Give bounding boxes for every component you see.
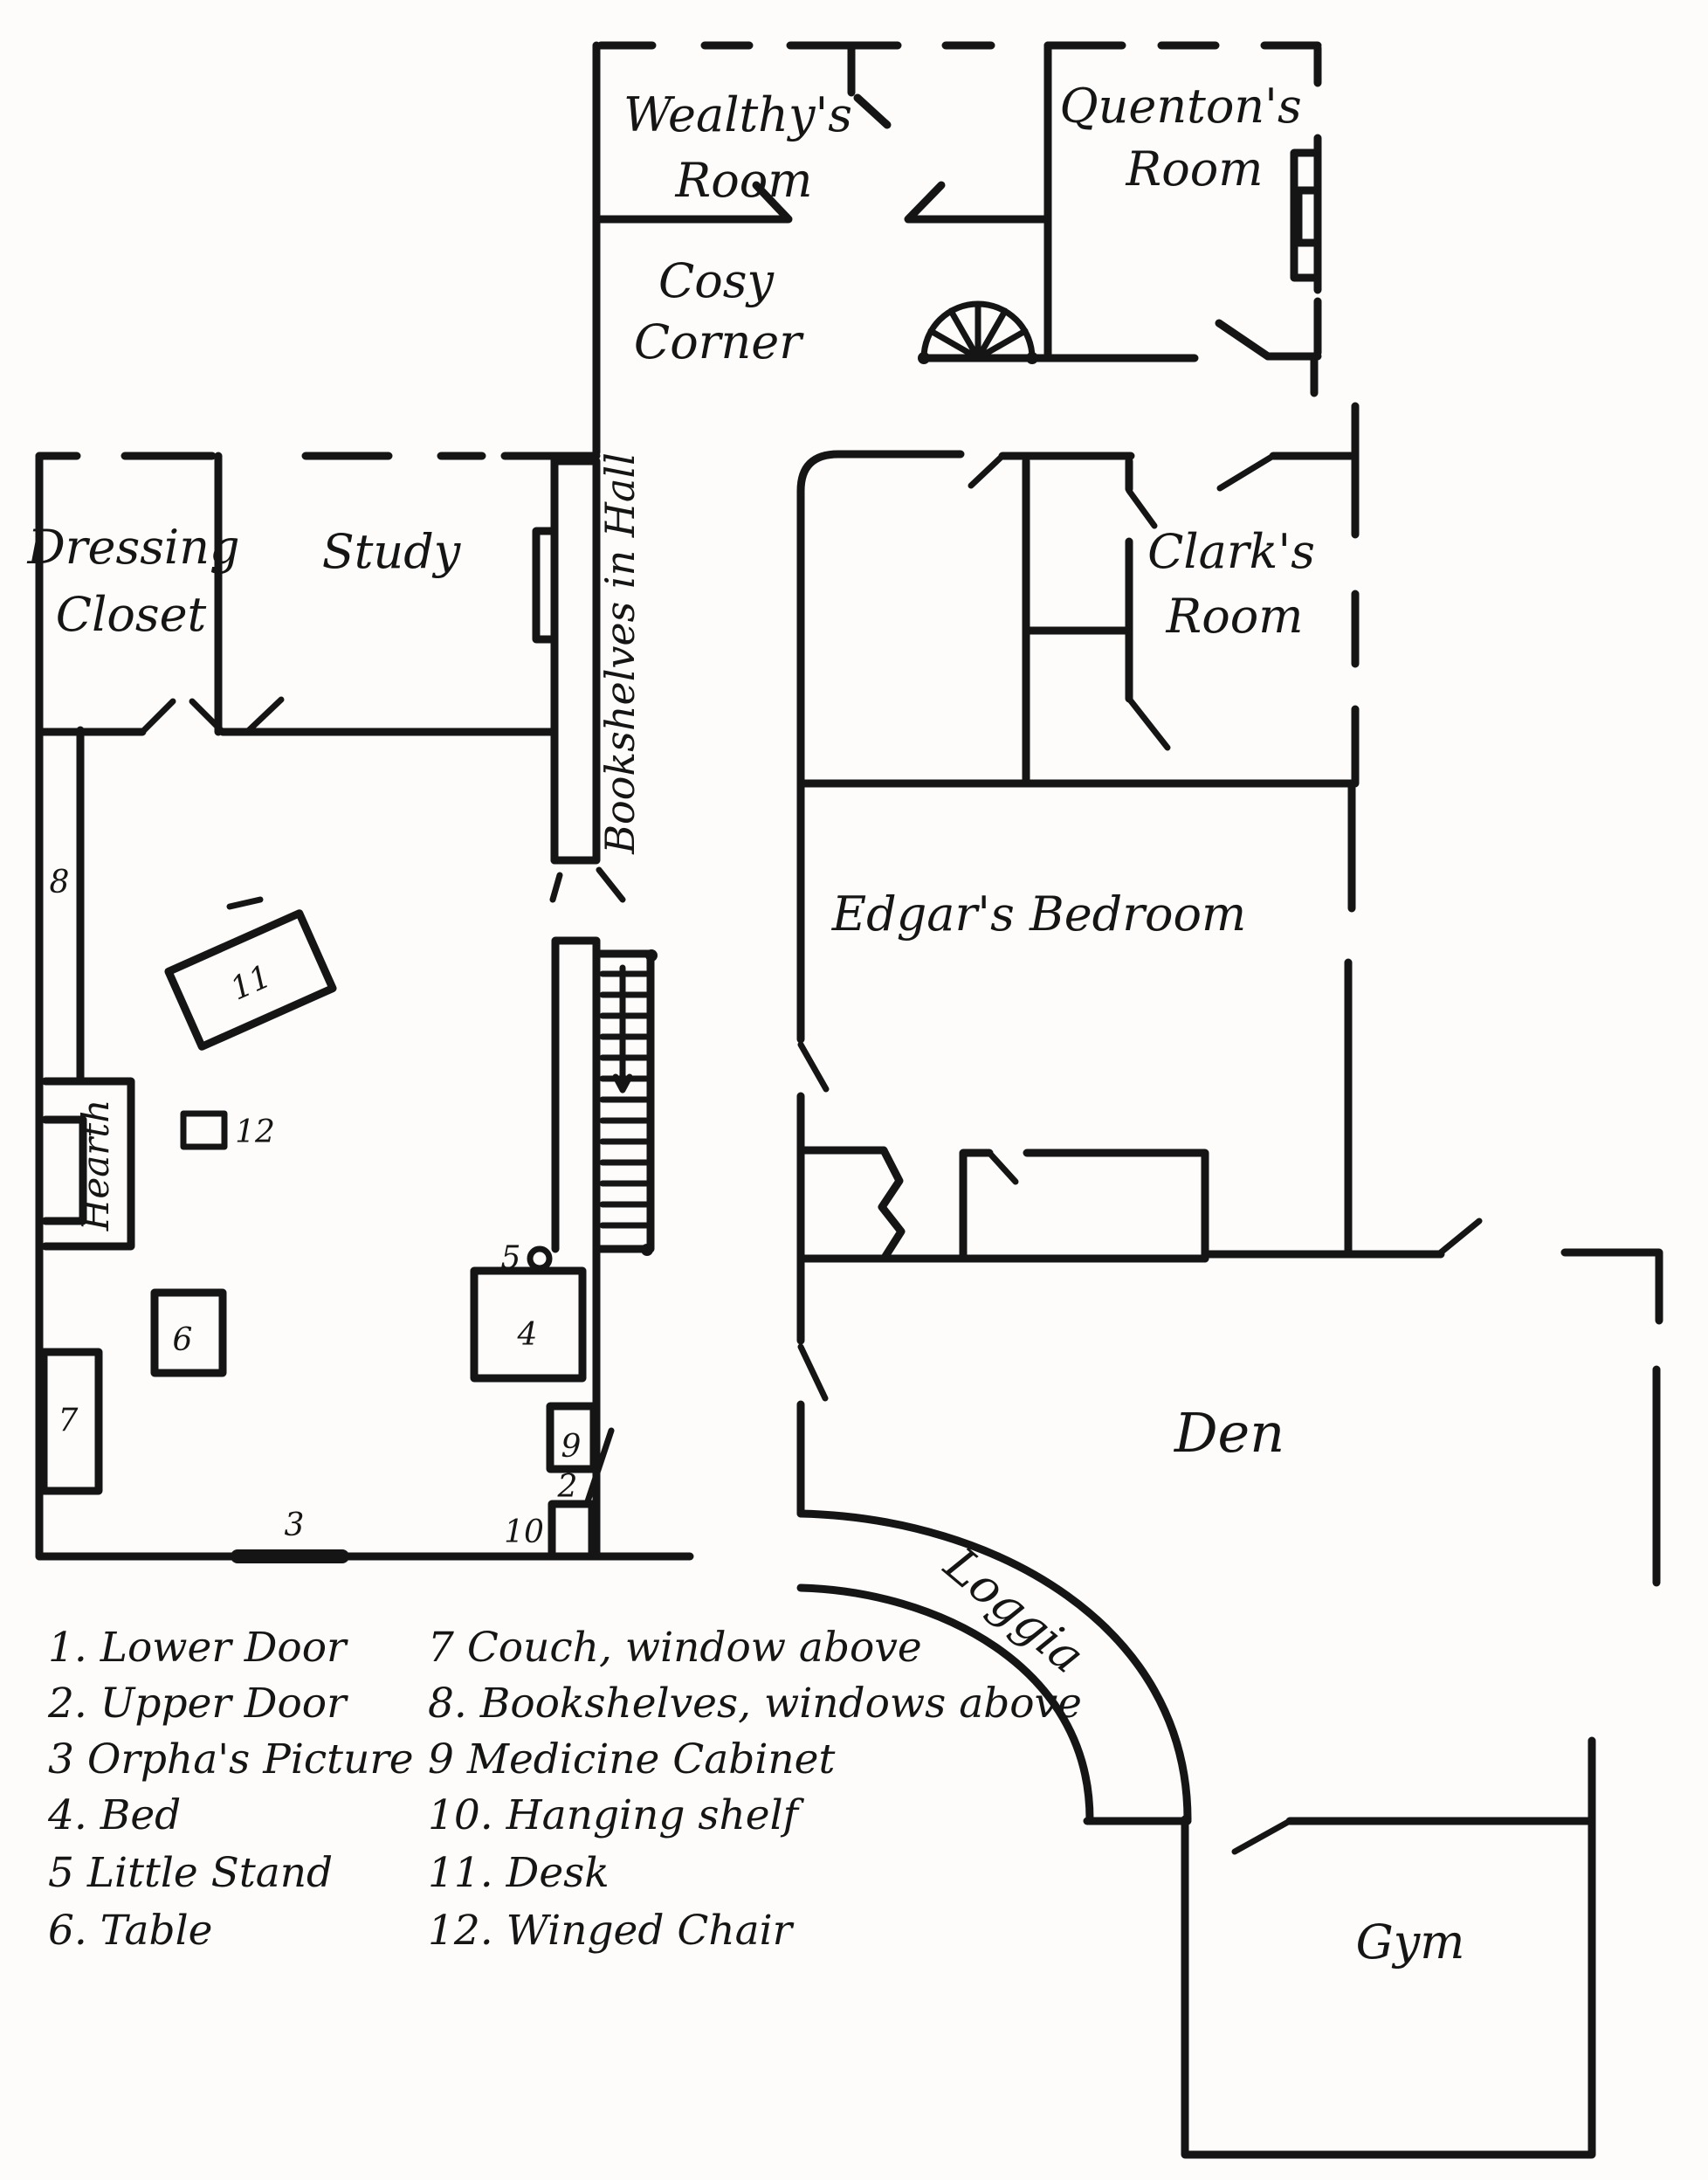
label-edgars-bedroom: Edgar's Bedroom	[831, 886, 1247, 942]
legend-item: 6. Table	[48, 1907, 212, 1955]
furniture-hall-lower	[474, 1249, 611, 1556]
floor-plan-page: Wealthy's Room Quenton's Room Cosy Corne…	[0, 0, 1708, 2180]
legend-item: 8. Bookshelves, windows above	[428, 1680, 1082, 1728]
legend-item: 7 Couch, window above	[428, 1624, 922, 1672]
label-clarks-room: Clark's	[1147, 524, 1315, 579]
marker-desk-11: 11	[225, 958, 277, 1007]
label-bookshelves-in-hall: Bookshelves in Hall	[596, 452, 644, 855]
label-study: Study	[322, 524, 462, 579]
stray-stroke	[230, 900, 260, 907]
label-dressing-closet: Closet	[56, 587, 207, 642]
legend-item: 9 Medicine Cabinet	[428, 1735, 835, 1783]
legend-item: 5 Little Stand	[48, 1849, 333, 1897]
straight-staircase	[596, 949, 658, 1256]
label-clarks-room: Room	[1166, 589, 1304, 644]
marker-table-6: 6	[173, 1322, 193, 1358]
stair-post-dot	[918, 352, 930, 364]
lower-door-swing	[553, 870, 623, 900]
stair-newel-dot	[641, 1244, 653, 1256]
stair-newel-dot	[645, 949, 658, 962]
marker-picture-3: 3	[285, 1507, 305, 1543]
hanging-shelf-10	[552, 1504, 592, 1556]
marker-bookshelves-8: 8	[50, 865, 70, 900]
marker-shelf-10: 10	[504, 1514, 544, 1550]
floor-plan-drawing: Wealthy's Room Quenton's Room Cosy Corne…	[0, 0, 1708, 2180]
marker-bed-4: 4	[517, 1317, 538, 1353]
legend-item: 11. Desk	[428, 1849, 610, 1897]
legend-item: 12. Winged Chair	[428, 1907, 795, 1955]
legend-item: 3 Orpha's Picture	[48, 1735, 414, 1783]
winged-chair-12	[183, 1114, 224, 1147]
label-den: Den	[1174, 1401, 1284, 1465]
label-quentons-room: Room	[1126, 141, 1264, 197]
label-dressing-closet: Dressing	[26, 520, 239, 575]
label-cosy-corner: Corner	[634, 314, 804, 369]
legend: 1. Lower Door 2. Upper Door 3 Orpha's Pi…	[47, 1624, 1082, 1955]
marker-stand-5: 5	[501, 1240, 521, 1276]
label-wealthys-room: Room	[675, 153, 813, 208]
legend-item: 10. Hanging shelf	[428, 1791, 805, 1839]
stair-down-arrow	[616, 968, 630, 1090]
legend-item: 1. Lower Door	[48, 1624, 348, 1672]
legend-item: 2. Upper Door	[47, 1680, 348, 1728]
label-wealthys-room: Wealthy's	[623, 87, 852, 142]
hall-bookshelf-case	[554, 461, 596, 860]
marker-chair-12: 12	[235, 1114, 275, 1150]
label-hearth: Hearth	[74, 1100, 117, 1232]
label-gym: Gym	[1356, 1914, 1465, 1970]
marker-cabinet-9: 9	[561, 1429, 582, 1465]
label-cosy-corner: Cosy	[658, 253, 775, 308]
little-stand-5	[530, 1249, 549, 1268]
marker-couch-7: 7	[59, 1403, 79, 1438]
stair-post-dot	[1026, 352, 1038, 364]
marker-upper-door-2: 2	[557, 1469, 578, 1505]
label-quentons-room: Quenton's	[1059, 79, 1301, 134]
legend-item: 4. Bed	[47, 1791, 181, 1839]
